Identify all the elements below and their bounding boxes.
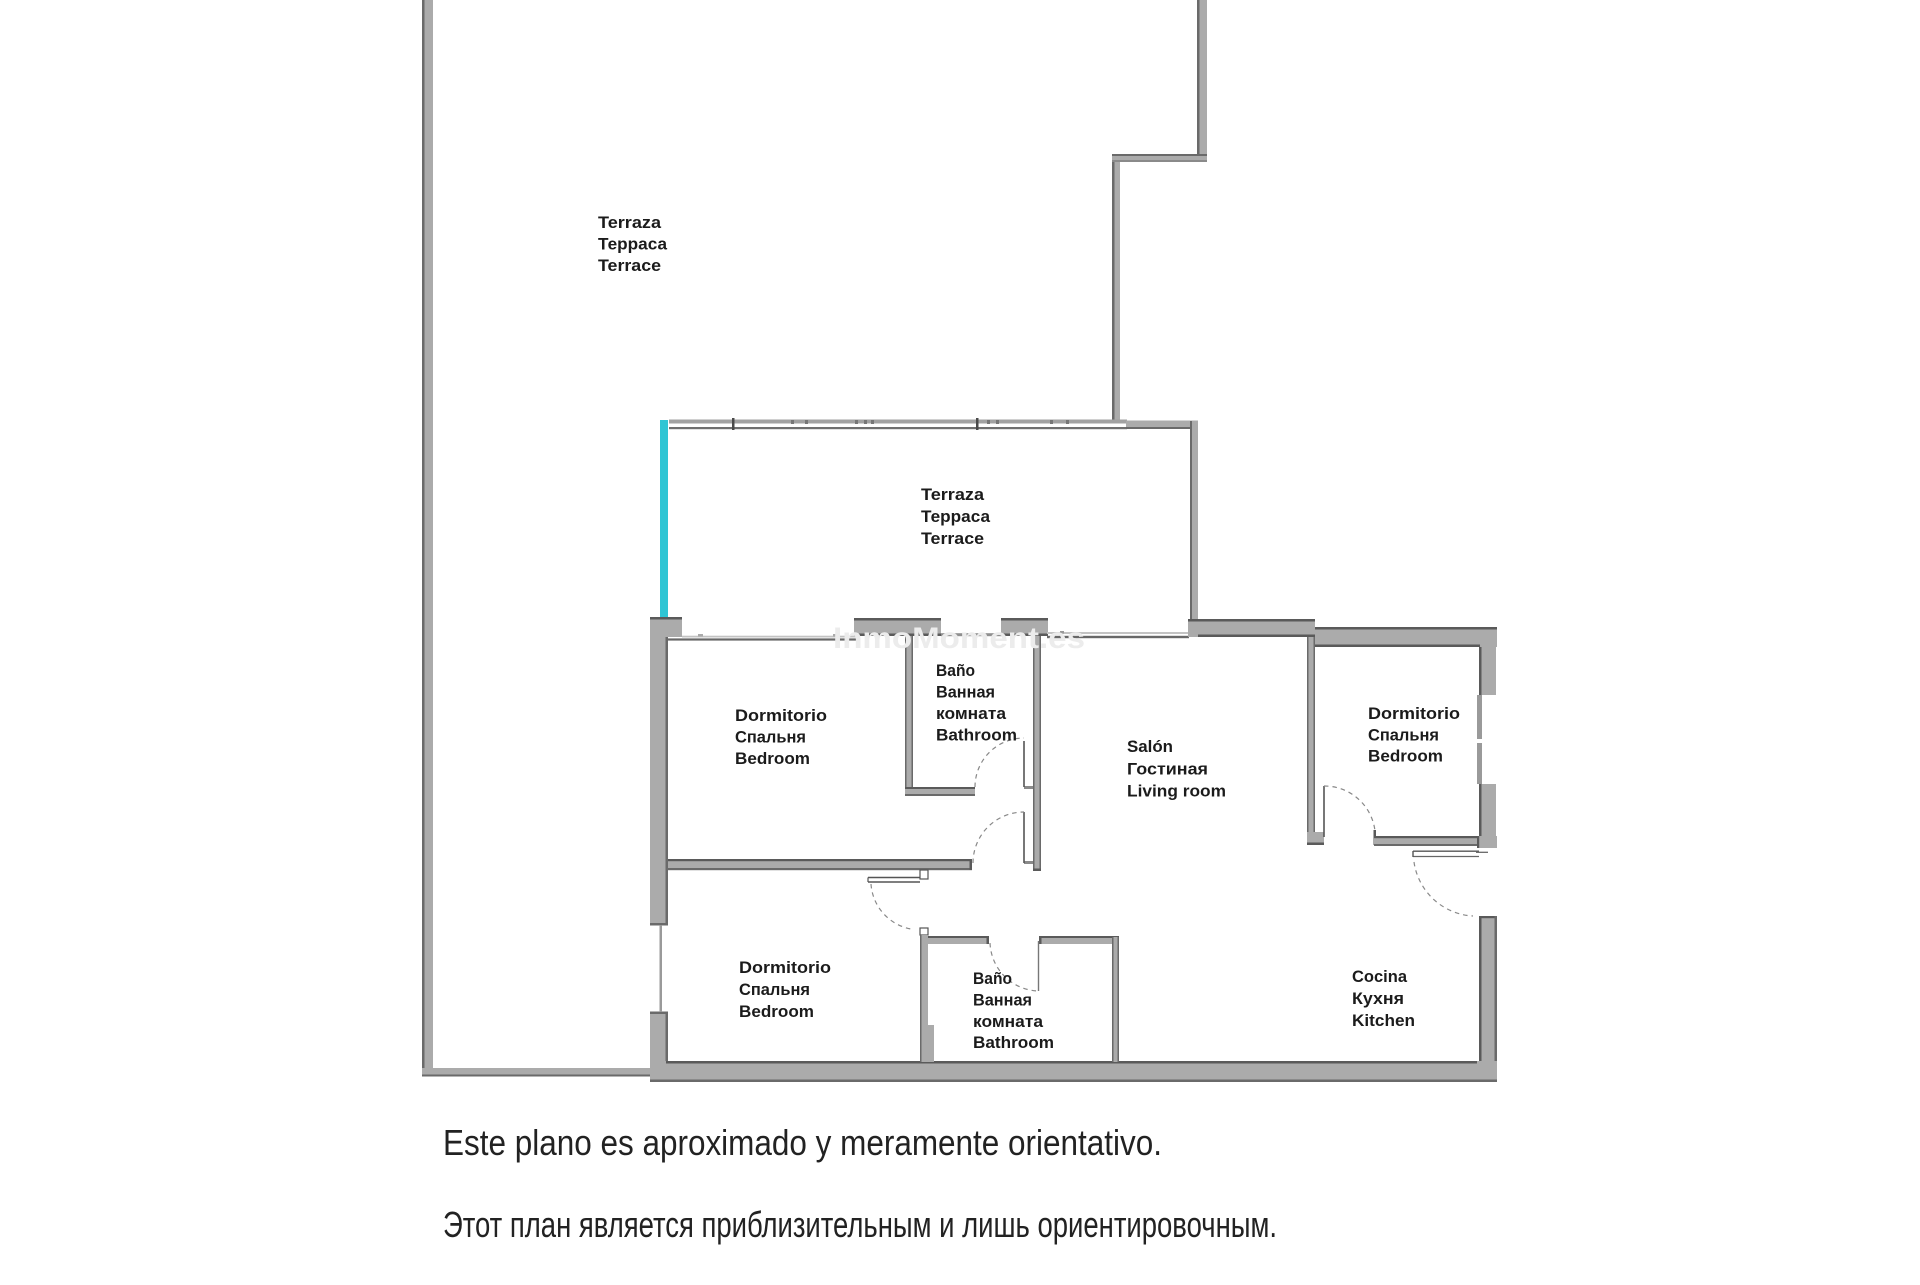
svg-text:Bathroom: Bathroom <box>936 726 1017 745</box>
svg-text:Bedroom: Bedroom <box>1368 747 1443 766</box>
svg-text:Terraza: Terraza <box>921 485 985 504</box>
svg-text:Спальня: Спальня <box>1368 725 1439 744</box>
svg-text:Terrace: Terrace <box>921 529 984 548</box>
svg-text:Terrace: Terrace <box>598 256 661 275</box>
svg-text:Baño: Baño <box>936 661 975 680</box>
svg-text:Кухня: Кухня <box>1352 989 1404 1008</box>
svg-text:Kitchen: Kitchen <box>1352 1011 1415 1030</box>
svg-text:Terraza: Terraza <box>598 213 662 232</box>
svg-text:Baño: Baño <box>973 969 1012 988</box>
svg-text:Этот план является приблизител: Этот план является приблизительным и лиш… <box>443 1204 1277 1245</box>
svg-text:Cocina: Cocina <box>1352 967 1408 986</box>
svg-text:Ванная: Ванная <box>973 990 1032 1009</box>
svg-text:Гостиная: Гостиная <box>1127 759 1208 778</box>
svg-text:Bedroom: Bedroom <box>735 749 810 768</box>
svg-text:Salón: Salón <box>1127 737 1173 756</box>
svg-text:Este plano es aproximado y mer: Este plano es aproximado y meramente ori… <box>443 1122 1162 1163</box>
svg-text:Dormitorio: Dormitorio <box>1368 704 1460 723</box>
svg-text:Терраса: Терраса <box>921 507 991 526</box>
svg-text:Спальня: Спальня <box>739 980 810 999</box>
svg-text:Bedroom: Bedroom <box>739 1002 814 1021</box>
svg-text:Спальня: Спальня <box>735 728 806 747</box>
svg-text:комната: комната <box>936 704 1007 723</box>
svg-text:Терраса: Терраса <box>598 235 668 254</box>
svg-text:Dormitorio: Dormitorio <box>735 706 827 725</box>
svg-text:Dormitorio: Dormitorio <box>739 958 831 977</box>
svg-text:InmoMoment.es: InmoMoment.es <box>833 622 1085 655</box>
svg-text:Ванная: Ванная <box>936 683 995 702</box>
svg-text:Bathroom: Bathroom <box>973 1033 1054 1052</box>
svg-text:Living room: Living room <box>1127 782 1226 801</box>
svg-text:комната: комната <box>973 1012 1044 1031</box>
